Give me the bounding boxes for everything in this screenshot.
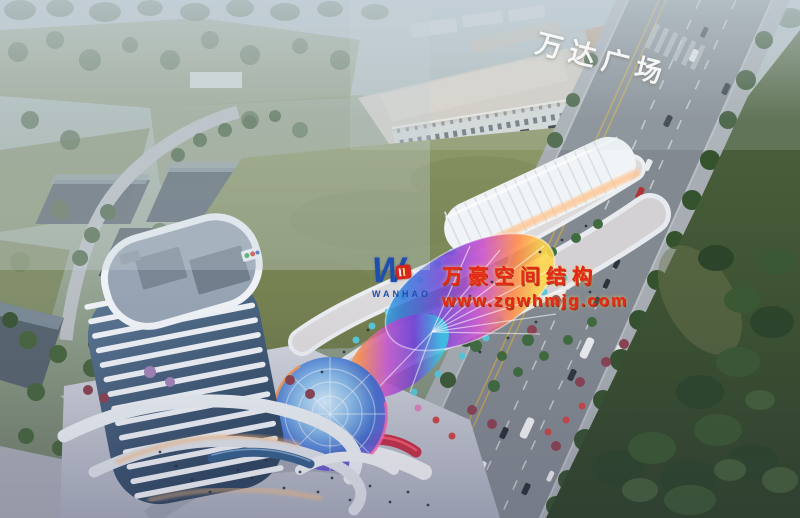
logo-badge-icon: [395, 264, 411, 279]
watermark-website-text: www.zgwhmjg.com: [442, 291, 628, 311]
watermark-company-text: 万豪空间结构: [442, 260, 628, 289]
aerial-rendering: 万达广场 W WANHAO 万豪空间结构 www.zgwhmjg.com: [0, 0, 800, 518]
watermark: W WANHAO 万豪空间结构 www.zgwhmjg.com: [372, 254, 628, 311]
logo-wordmark: WANHAO: [372, 289, 434, 299]
wanhao-logo-icon: W WANHAO: [372, 254, 434, 306]
watermark-text: 万豪空间结构 www.zgwhmjg.com: [442, 260, 628, 311]
